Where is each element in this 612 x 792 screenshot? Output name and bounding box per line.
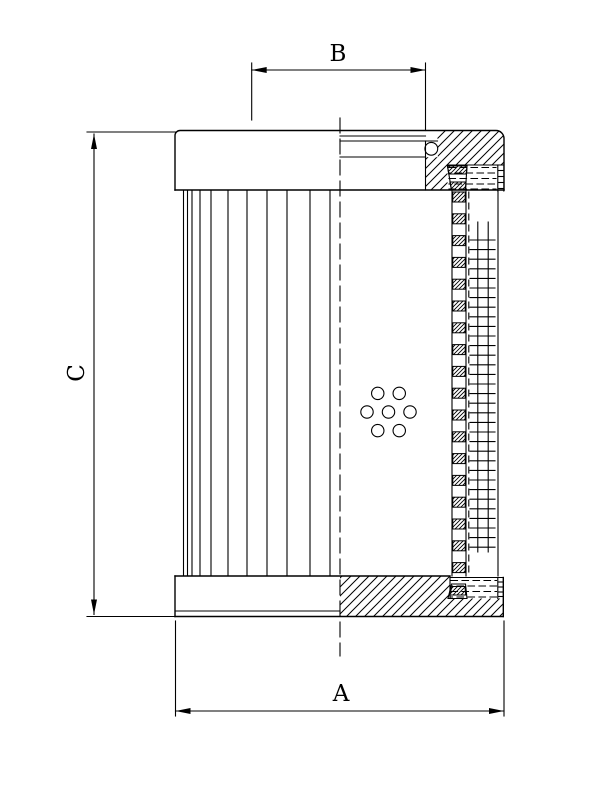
core-perforation: [453, 279, 465, 289]
dimension-b: B: [252, 41, 426, 131]
dim-c-arrow-bottom: [91, 600, 97, 615]
core-perforation: [453, 388, 465, 398]
core-perforation: [453, 475, 465, 485]
core-perforation: [453, 454, 465, 464]
dimension-label-b: B: [330, 41, 347, 67]
dim-a-arrow-right: [489, 708, 504, 714]
filter-element-section-drawing: B C A: [0, 0, 612, 792]
bypass-hole: [382, 406, 394, 418]
bottom-cap-section-hatch-slab: [340, 599, 503, 617]
dimension-label-a: A: [332, 681, 350, 707]
bypass-hole: [393, 424, 405, 436]
core-perforation: [453, 497, 465, 507]
core-perforation: [453, 236, 465, 246]
bypass-holes: [361, 387, 416, 437]
core-perforation: [453, 541, 465, 551]
top-outer-strip-area: [498, 165, 505, 191]
bottom-cap-section-hatch-upper: [340, 576, 450, 599]
core-perforation: [453, 432, 465, 442]
bypass-hole: [372, 387, 384, 399]
bypass-hole: [361, 406, 373, 418]
bypass-hole: [404, 406, 416, 418]
dim-b-arrow-left: [252, 67, 267, 73]
pleated-filter-media: [184, 191, 331, 577]
dim-c-arrow-top: [91, 134, 97, 149]
dimension-label-c: C: [64, 364, 90, 382]
drawing-page: B C A: [0, 0, 612, 792]
core-perforation: [453, 410, 465, 420]
core-perforation: [453, 257, 465, 267]
core-tube: [452, 190, 469, 576]
core-perforation: [453, 563, 465, 573]
dimension-c: C: [64, 132, 176, 617]
bottom-outer-strip-area: [498, 578, 504, 599]
bottom-end-cap: [175, 576, 503, 617]
core-perforation: [453, 192, 465, 202]
core-perforation: [453, 345, 465, 355]
bypass-hole: [372, 424, 384, 436]
core-perforations: [453, 192, 465, 573]
core-perforation: [453, 214, 465, 224]
core-perforation: [453, 519, 465, 529]
bypass-hole: [393, 387, 405, 399]
dim-b-arrow-right: [411, 67, 426, 73]
dim-a-arrow-left: [176, 708, 191, 714]
core-perforation: [453, 323, 465, 333]
support-mesh: [470, 222, 495, 552]
core-perforation: [453, 301, 465, 311]
core-perforation: [453, 366, 465, 376]
